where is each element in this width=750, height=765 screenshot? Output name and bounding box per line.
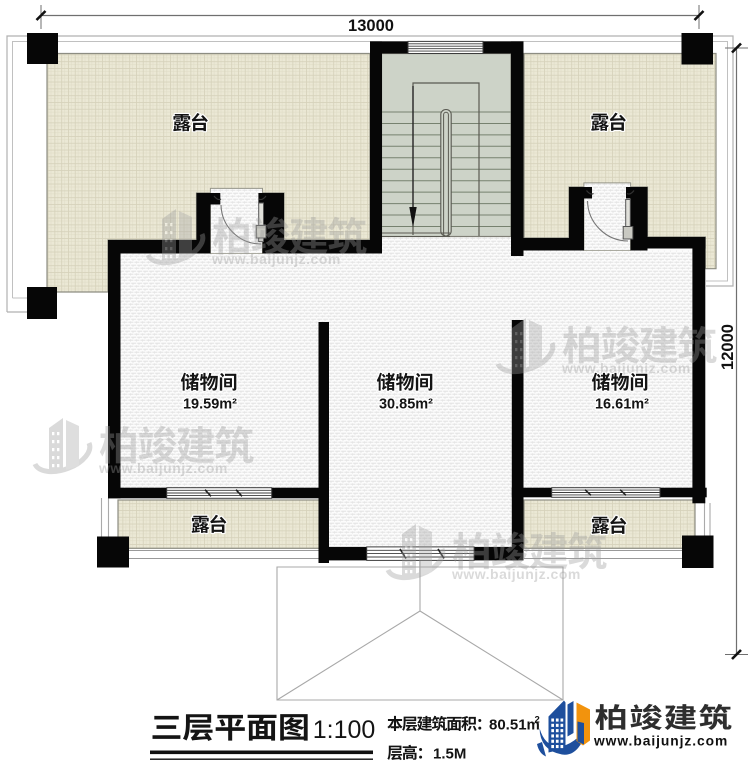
svg-text:16.61m²: 16.61m² <box>595 397 649 413</box>
svg-text:1:100: 1:100 <box>313 716 376 744</box>
svg-text:www.baijunjz.com: www.baijunjz.com <box>561 360 691 376</box>
svg-text:www.baijunjz.com: www.baijunjz.com <box>593 734 728 749</box>
svg-text:80.51m: 80.51m <box>489 717 540 734</box>
svg-text:www.baijunjz.com: www.baijunjz.com <box>451 566 581 582</box>
svg-text:13000: 13000 <box>348 17 394 35</box>
svg-text:19.59m²: 19.59m² <box>183 397 237 413</box>
svg-text:www.baijunjz.com: www.baijunjz.com <box>211 251 341 267</box>
svg-text:2: 2 <box>535 715 540 726</box>
svg-text:12000: 12000 <box>719 324 737 370</box>
svg-text:30.85m²: 30.85m² <box>379 397 433 413</box>
svg-text:www.baijunjz.com: www.baijunjz.com <box>98 460 228 476</box>
svg-text:1.5M: 1.5M <box>433 746 466 763</box>
